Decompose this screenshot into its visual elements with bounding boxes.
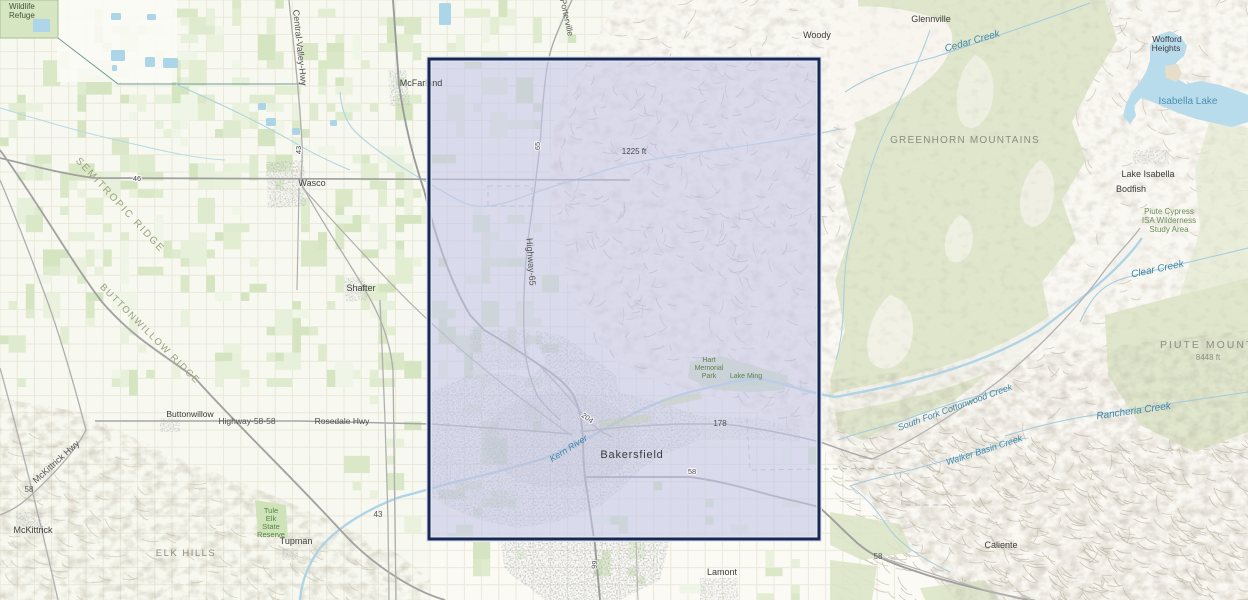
svg-text:58: 58	[874, 552, 883, 561]
svg-text:ISA Wilderness: ISA Wilderness	[1142, 216, 1196, 225]
svg-text:Buttonwillow: Buttonwillow	[166, 409, 214, 419]
svg-text:Highway-58-58: Highway-58-58	[218, 416, 275, 426]
svg-text:Memorial: Memorial	[695, 365, 724, 372]
svg-text:58: 58	[25, 485, 34, 494]
svg-text:Heights: Heights	[1152, 43, 1181, 53]
svg-text:Shafter: Shafter	[346, 283, 375, 293]
svg-text:Wasco: Wasco	[298, 178, 325, 188]
svg-text:43: 43	[294, 146, 303, 154]
svg-text:Lake Ming: Lake Ming	[730, 373, 762, 380]
svg-text:43: 43	[374, 510, 383, 519]
svg-text:Hart: Hart	[702, 357, 715, 364]
svg-text:178: 178	[713, 419, 727, 428]
svg-text:Lamont: Lamont	[707, 567, 738, 577]
svg-text:Bakersfield: Bakersfield	[600, 449, 663, 461]
svg-text:Woody: Woody	[803, 30, 831, 40]
svg-text:McFarland: McFarland	[400, 78, 443, 88]
svg-text:Caliente: Caliente	[984, 540, 1017, 550]
svg-text:PIUTE MOUNTAINS: PIUTE MOUNTAINS	[1160, 339, 1248, 351]
svg-text:1225 ft: 1225 ft	[622, 147, 647, 156]
svg-text:8448 ft: 8448 ft	[1196, 353, 1221, 362]
svg-text:ELK HILLS: ELK HILLS	[156, 548, 217, 559]
svg-text:46: 46	[133, 174, 141, 183]
svg-text:58: 58	[688, 467, 696, 476]
svg-text:Isabella Lake: Isabella Lake	[1159, 96, 1218, 107]
svg-text:Study Area: Study Area	[1149, 225, 1189, 234]
svg-text:Bodfish: Bodfish	[1116, 184, 1146, 194]
svg-text:Piute Cypress: Piute Cypress	[1144, 207, 1194, 216]
svg-text:Park: Park	[702, 373, 717, 380]
svg-text:65: 65	[533, 142, 542, 150]
svg-text:McKittrick: McKittrick	[14, 525, 53, 535]
svg-text:Refuge: Refuge	[9, 11, 35, 20]
svg-text:Glennville: Glennville	[911, 14, 951, 24]
svg-text:99: 99	[590, 560, 600, 569]
svg-text:Lake Isabella: Lake Isabella	[1121, 169, 1174, 179]
svg-text:Reserve: Reserve	[257, 530, 285, 539]
svg-text:Wildlife: Wildlife	[9, 2, 35, 11]
svg-text:GREENHORN MOUNTAINS: GREENHORN MOUNTAINS	[890, 135, 1040, 146]
svg-text:Rosedale Hwy: Rosedale Hwy	[315, 416, 371, 426]
